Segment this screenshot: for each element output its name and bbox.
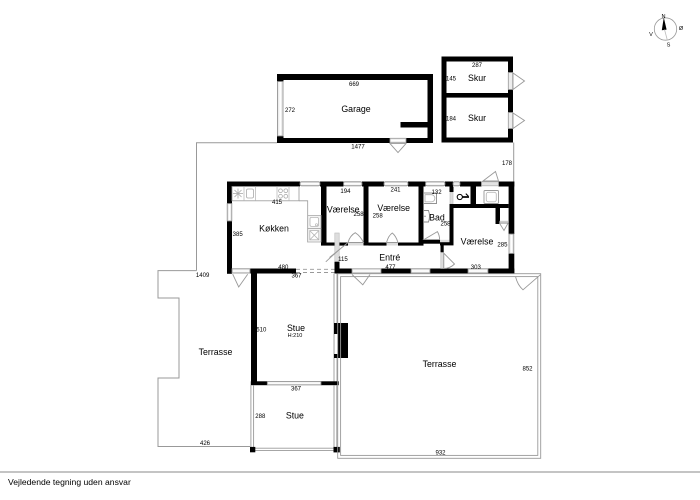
svg-text:V: V xyxy=(649,32,653,38)
svg-text:Vejledende tegning uden ansvar: Vejledende tegning uden ansvar xyxy=(8,477,131,487)
svg-text:S: S xyxy=(667,43,671,49)
svg-text:288: 288 xyxy=(255,414,266,420)
svg-text:852: 852 xyxy=(522,366,533,372)
svg-text:Stue: Stue xyxy=(287,323,305,333)
svg-text:367: 367 xyxy=(291,386,302,392)
svg-text:Skur: Skur xyxy=(468,113,486,123)
svg-text:415: 415 xyxy=(272,200,283,206)
svg-text:303: 303 xyxy=(471,265,482,271)
svg-text:477: 477 xyxy=(385,265,396,271)
svg-text:H:210: H:210 xyxy=(288,333,303,339)
svg-text:367: 367 xyxy=(291,273,302,279)
svg-text:1409: 1409 xyxy=(196,273,210,279)
svg-text:932: 932 xyxy=(435,450,446,456)
svg-text:Terrasse: Terrasse xyxy=(423,359,457,369)
svg-text:178: 178 xyxy=(502,161,513,167)
svg-text:Skur: Skur xyxy=(468,73,486,83)
svg-text:669: 669 xyxy=(349,82,360,88)
svg-text:258: 258 xyxy=(440,221,451,227)
svg-text:426: 426 xyxy=(200,441,211,447)
svg-text:287: 287 xyxy=(472,63,483,69)
svg-text:Stue: Stue xyxy=(286,411,304,421)
svg-text:258: 258 xyxy=(354,212,365,218)
svg-text:Ø: Ø xyxy=(679,26,684,32)
svg-text:385: 385 xyxy=(233,232,244,238)
svg-text:N: N xyxy=(661,14,665,20)
svg-text:510: 510 xyxy=(256,328,267,334)
svg-text:145: 145 xyxy=(446,77,457,83)
svg-text:Køkken: Køkken xyxy=(259,223,289,233)
svg-text:132: 132 xyxy=(432,190,443,196)
svg-text:Værelse: Værelse xyxy=(377,203,410,213)
svg-text:480: 480 xyxy=(278,265,289,271)
svg-text:115: 115 xyxy=(338,257,348,263)
svg-text:Garage: Garage xyxy=(341,104,370,114)
svg-text:194: 194 xyxy=(340,189,351,195)
svg-text:1477: 1477 xyxy=(351,145,365,151)
svg-text:272: 272 xyxy=(285,108,296,114)
svg-text:285: 285 xyxy=(497,243,508,249)
svg-text:184: 184 xyxy=(446,117,457,123)
svg-text:Entré: Entré xyxy=(379,252,400,262)
svg-text:Terrasse: Terrasse xyxy=(199,347,233,357)
svg-text:Værelse: Værelse xyxy=(461,237,494,247)
svg-text:258: 258 xyxy=(373,213,384,219)
svg-text:241: 241 xyxy=(390,187,401,193)
